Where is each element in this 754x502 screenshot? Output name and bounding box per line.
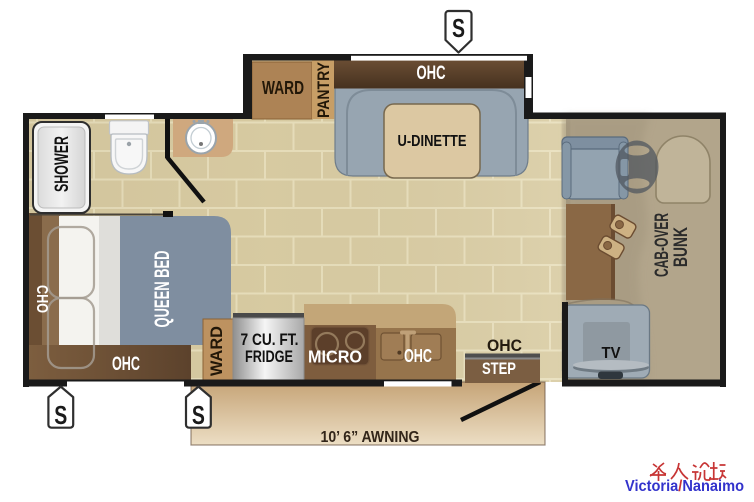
svg-text:S: S [452,13,465,43]
svg-text:CAB-OVER: CAB-OVER [652,213,673,277]
svg-text:OHC: OHC [417,63,446,84]
svg-text:10’ 6” AWNING: 10’ 6” AWNING [321,429,420,446]
svg-text:TV: TV [602,345,621,362]
svg-text:Victoria/Nanaimo: Victoria/Nanaimo [625,478,744,495]
svg-text:PANTRY: PANTRY [314,61,333,118]
svg-text:QUEEN BED: QUEEN BED [151,251,174,328]
svg-text:OHC: OHC [404,346,432,366]
svg-text:FRIDGE: FRIDGE [245,347,293,366]
svg-text:BUNK: BUNK [671,227,692,267]
svg-text:WARD: WARD [207,326,226,376]
svg-text:STEP: STEP [482,360,516,378]
svg-text:WARD: WARD [262,78,304,98]
svg-text:OHC: OHC [487,336,522,355]
svg-text:U-DINETTE: U-DINETTE [398,133,467,150]
svg-text:S: S [54,400,67,430]
svg-text:MICRO: MICRO [308,347,362,367]
svg-text:S: S [192,400,205,430]
svg-text:SHOWER: SHOWER [52,136,73,192]
svg-text:OHC: OHC [112,354,140,375]
svg-text:CHO: CHO [33,285,50,313]
